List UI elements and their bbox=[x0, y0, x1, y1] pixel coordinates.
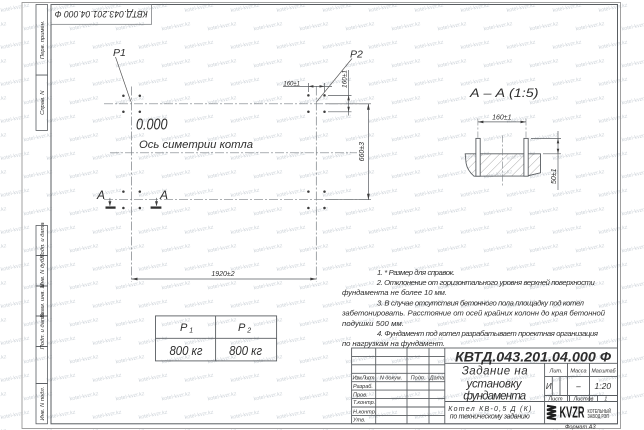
svg-text:фундамента не более 10 мм.: фундамента не более 10 мм. bbox=[342, 288, 447, 297]
svg-text:1: 1 bbox=[604, 397, 607, 403]
svg-text:Масштаб: Масштаб bbox=[592, 369, 617, 375]
svg-text:Утв.: Утв. bbox=[352, 418, 366, 424]
svg-text:Листов: Листов bbox=[572, 397, 593, 403]
svg-text:0.000: 0.000 bbox=[136, 116, 168, 133]
svg-text:И: И bbox=[546, 382, 552, 391]
svg-text:Ось симетрии котла: Ось симетрии котла bbox=[139, 139, 253, 151]
svg-text:160±1: 160±1 bbox=[283, 81, 300, 87]
svg-text:800 кг: 800 кг bbox=[170, 344, 203, 358]
svg-text:2. Отклонение от горизонтально: 2. Отклонение от горизонтального уровня … bbox=[376, 278, 596, 287]
svg-text:Инв. N подл.: Инв. N подл. bbox=[40, 387, 46, 421]
svg-text:Пров.: Пров. bbox=[353, 392, 368, 398]
svg-text:Дата: Дата bbox=[429, 376, 445, 382]
svg-text:подушки 500 мм.: подушки 500 мм. bbox=[342, 319, 404, 328]
svg-text:160±1: 160±1 bbox=[492, 114, 512, 121]
svg-text:КВТД.043.201.04.000 Ф: КВТД.043.201.04.000 Ф bbox=[54, 8, 147, 19]
svg-text:А – А (1:5): А – А (1:5) bbox=[469, 86, 539, 100]
svg-text:Взам. инв. N: Взам. инв. N bbox=[40, 283, 46, 318]
svg-text:Задание на: Задание на bbox=[462, 366, 528, 378]
svg-text:Инв. N дубл.: Инв. N дубл. bbox=[40, 254, 46, 288]
svg-text:1920±2: 1920±2 bbox=[211, 271, 234, 278]
svg-text:A: A bbox=[159, 188, 168, 202]
svg-text:A: A bbox=[96, 188, 105, 202]
svg-text:660±3: 660±3 bbox=[359, 142, 366, 162]
svg-text:1. * Размер для справок.: 1. * Размер для справок. bbox=[377, 268, 455, 277]
svg-text:по техническому заданию: по техническому заданию bbox=[450, 412, 531, 420]
svg-text:по нагрузкам на фундамент.: по нагрузкам на фундамент. bbox=[342, 339, 445, 348]
svg-text:Подп.: Подп. bbox=[411, 376, 426, 382]
svg-text:установку: установку bbox=[466, 379, 523, 391]
svg-text:Н.контр.: Н.контр. bbox=[353, 409, 376, 415]
svg-text:Р1: Р1 bbox=[113, 47, 126, 59]
svg-text:160±1: 160±1 bbox=[342, 70, 349, 88]
svg-text:Масса: Масса bbox=[570, 369, 586, 375]
svg-text:Изм.Лист: Изм.Лист bbox=[353, 376, 375, 382]
svg-text:Перв. примен.: Перв. примен. bbox=[40, 21, 46, 60]
svg-text:фундамента: фундамента bbox=[463, 391, 526, 403]
svg-text:1:20: 1:20 bbox=[595, 381, 612, 391]
svg-text:забетонировать. Расстояние от: забетонировать. Расстояние от осей крайн… bbox=[341, 309, 606, 318]
svg-text:3. В случае отсутствия бетонно: 3. В случае отсутствия бетонного пола пл… bbox=[377, 298, 585, 307]
svg-text:КВТД.043.201.04.000 Ф: КВТД.043.201.04.000 Ф bbox=[455, 348, 611, 364]
svg-text:Разраб.: Разраб. bbox=[353, 384, 373, 390]
svg-text:KVZR: KVZR bbox=[560, 405, 585, 422]
svg-text:Справ. N: Справ. N bbox=[40, 90, 46, 115]
svg-text:Т.контр.: Т.контр. bbox=[353, 400, 375, 406]
svg-text:–: – bbox=[575, 382, 581, 391]
svg-text:N докум.: N докум. bbox=[380, 376, 402, 382]
svg-text:4. Фундамент под котел разраба: 4. Фундамент под котел разрабатывает про… bbox=[377, 329, 598, 338]
svg-text:800 кг: 800 кг bbox=[229, 344, 262, 358]
svg-text:50±1: 50±1 bbox=[551, 168, 558, 184]
svg-text:Подп. и дата: Подп. и дата bbox=[40, 222, 46, 259]
svg-text:Лит.: Лит. bbox=[549, 369, 563, 375]
svg-text:ЗАВОД РЭП: ЗАВОД РЭП bbox=[588, 414, 610, 420]
svg-text:Формат А3: Формат А3 bbox=[565, 424, 596, 430]
svg-text:Лист: Лист bbox=[547, 397, 563, 403]
svg-text:Подп. и дата: Подп. и дата bbox=[40, 312, 46, 349]
